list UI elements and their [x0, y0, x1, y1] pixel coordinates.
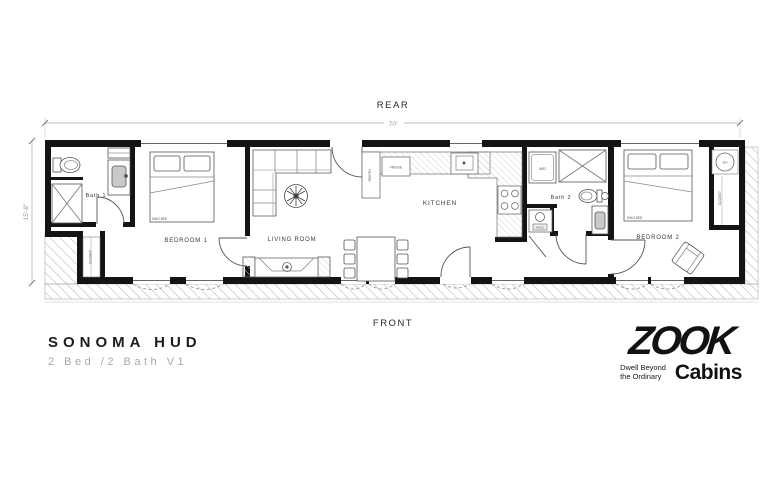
media-console — [243, 257, 330, 277]
bedroom1-partition-upper — [245, 147, 250, 236]
title-block: SONOMA HUD 2 Bed /2 Bath V1 — [48, 334, 202, 368]
bath1-bottom-stub — [123, 222, 135, 227]
height-dimension: 15'-8" — [23, 203, 30, 220]
left-step-wall — [77, 231, 83, 284]
dining-table — [357, 237, 395, 281]
rear-label: REAR — [377, 100, 409, 111]
bedroom2-label: BEDROOM 2 — [636, 235, 679, 241]
kitchen-label: KITCHEN — [423, 200, 457, 207]
bed2-pillow-left — [628, 154, 656, 169]
closet-left-wall — [100, 231, 105, 277]
bed1-pillow-left — [154, 156, 180, 171]
kitchen-rear-window — [450, 140, 482, 147]
bedroom2-partition — [608, 147, 614, 240]
width-dimension: 70' — [389, 121, 397, 128]
dining-chair — [344, 240, 355, 250]
stove — [498, 186, 521, 214]
closet-left-label: CLOSET — [89, 249, 93, 264]
hvac-top-wall — [527, 204, 557, 208]
dining-chair — [397, 254, 408, 264]
zook-cabins-logo: ZOOK Dwell Beyond the Ordinary Cabins — [610, 324, 752, 383]
vanity2-sink — [595, 212, 605, 229]
closet-right-bottom-wall — [709, 225, 745, 230]
bedroom1-rear-window — [139, 140, 229, 147]
bedroom1-label: BEDROOM 1 — [164, 238, 207, 244]
bath2-label: Bath 2 — [551, 195, 572, 201]
hvac-label: HVAC — [536, 226, 545, 230]
hvac-unit: HVAC — [529, 210, 552, 232]
bedroom2-rear-window — [619, 140, 701, 147]
vanity1-sink — [112, 166, 126, 187]
plan-title: SONOMA HUD — [48, 334, 202, 351]
hall-corner-wall — [495, 237, 527, 242]
dining-fixtures — [344, 237, 408, 281]
closet-right: WH CLOSET — [712, 147, 739, 225]
logo-tagline: Dwell Beyond the Ordinary — [620, 363, 666, 383]
bedroom1-fixtures: KING BED — [150, 152, 214, 222]
king-bed-2-label: KING BED — [627, 216, 643, 220]
dining-chair — [344, 268, 355, 278]
zook-wordmark: ZOOK — [608, 324, 754, 358]
living-room-label: LIVING ROOM — [268, 237, 317, 243]
tagline-line1: Dwell Beyond — [620, 363, 666, 372]
dining-chair — [344, 254, 355, 264]
fridge-label: FRIDGE — [390, 166, 402, 170]
left-wall — [45, 140, 51, 237]
pantry-label: PANTRY — [368, 168, 372, 182]
water-heater-label: WH — [723, 161, 728, 165]
closet-left: CLOSET — [83, 237, 100, 277]
dining-chair — [397, 240, 408, 250]
right-wall — [739, 140, 745, 284]
bath2-sink — [602, 193, 609, 200]
cabins-wordmark: Cabins — [675, 362, 742, 383]
bed2-pillow-right — [660, 154, 688, 169]
floor-plan-drawing: REAR 70' 15'-8" FRONT — [0, 0, 768, 497]
closet-right-label: CLOSET — [718, 190, 722, 205]
bath1-partition — [130, 147, 135, 227]
bed1-pillow-right — [184, 156, 210, 171]
plan-subtitle: 2 Bed /2 Bath V1 — [48, 356, 202, 368]
floor-plan-page: REAR 70' 15'-8" FRONT — [0, 0, 768, 497]
kitchen-bath2-wall — [522, 147, 527, 242]
bath1-label: Bath 1 — [86, 193, 107, 199]
toilet-nook-divider — [51, 177, 83, 180]
king-bed-1-label: KING BED — [152, 217, 168, 221]
dining-chair — [397, 268, 408, 278]
washer-dryer-label: W/D — [539, 167, 546, 171]
tagline-line2: the Ordinary — [620, 372, 666, 381]
front-label: FRONT — [373, 318, 413, 329]
